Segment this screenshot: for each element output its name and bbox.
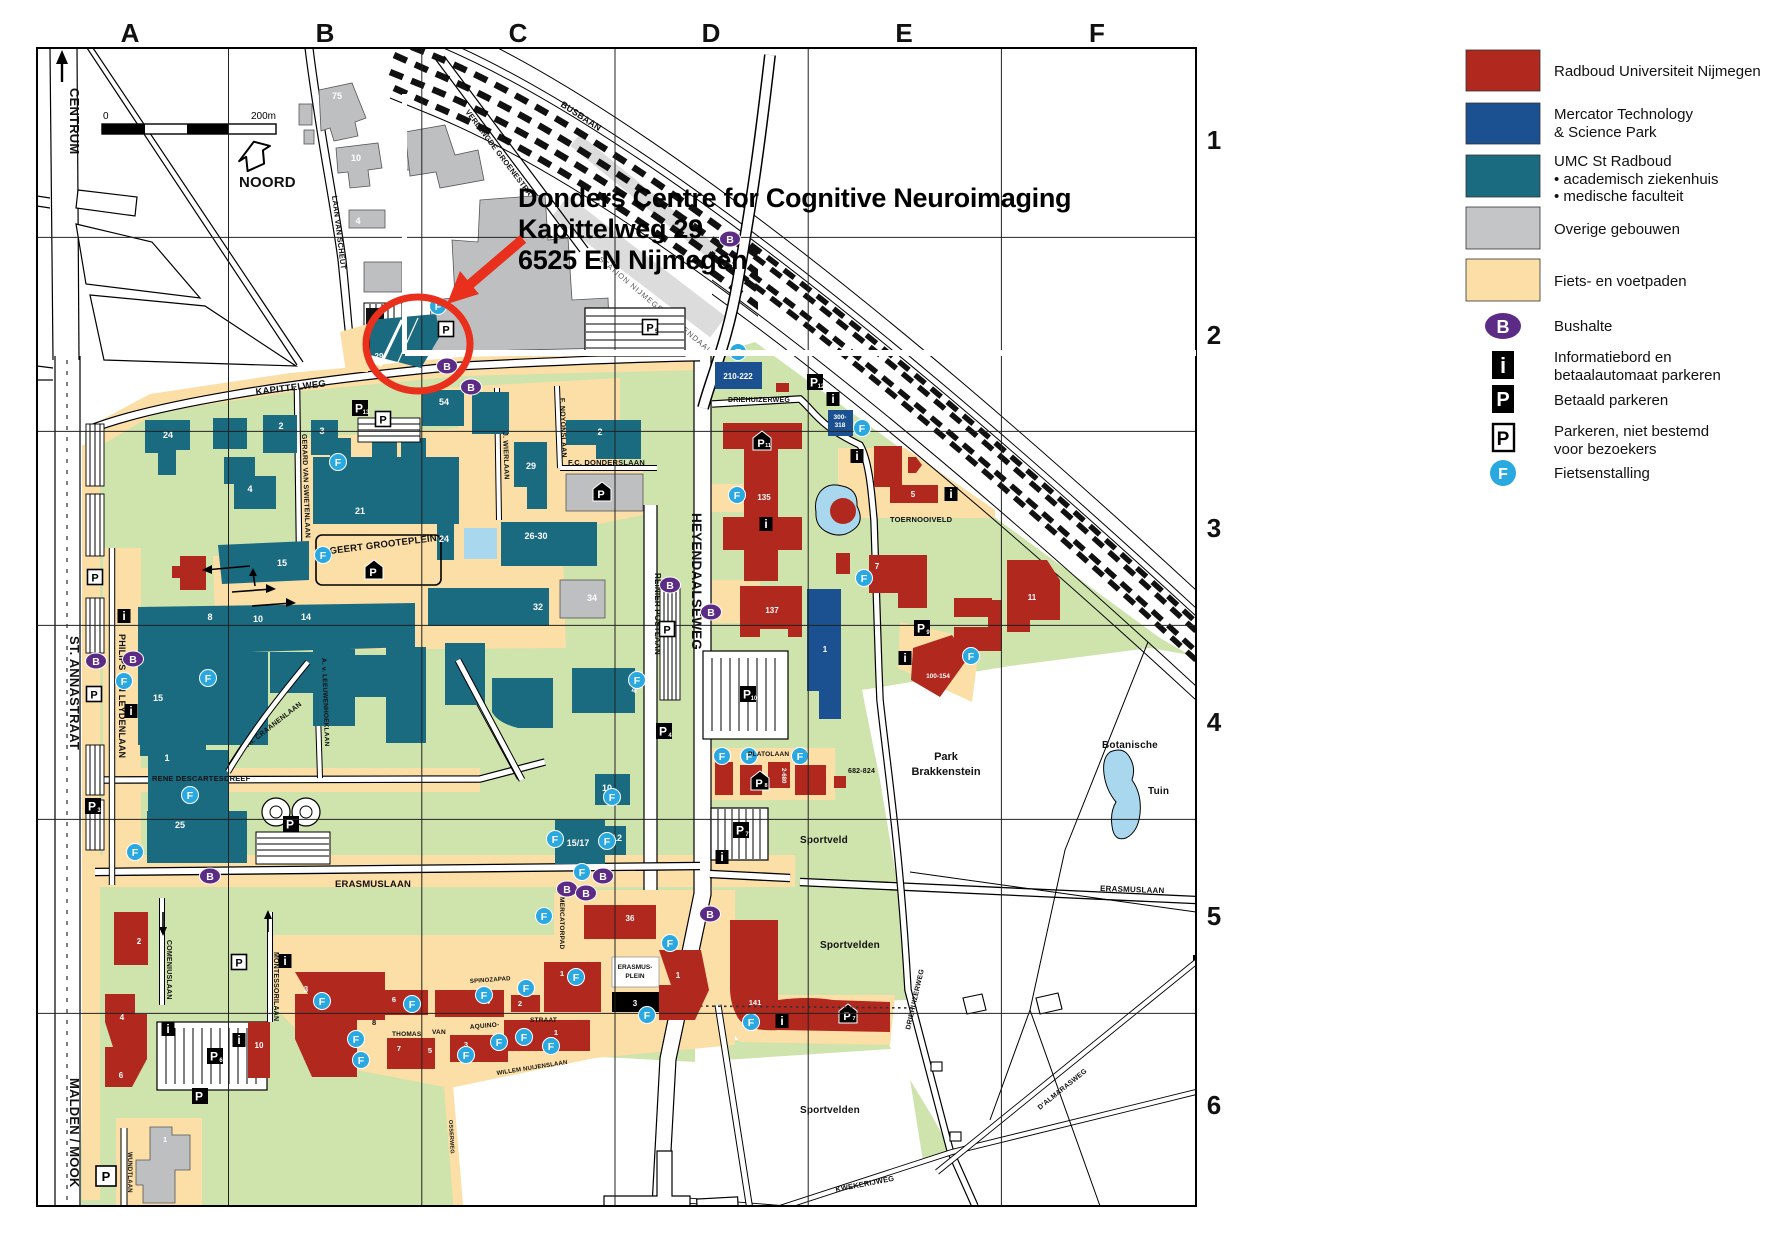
svg-text:Park: Park — [934, 751, 959, 763]
svg-text:29: 29 — [375, 352, 384, 361]
svg-text:TOERNOOIVELD: TOERNOOIVELD — [890, 515, 953, 524]
svg-text:210-222: 210-222 — [723, 372, 753, 381]
svg-text:Sportvelden: Sportvelden — [800, 1105, 860, 1116]
svg-text:25: 25 — [175, 820, 185, 830]
svg-text:26-30: 26-30 — [524, 531, 547, 541]
svg-text:1: 1 — [163, 1135, 167, 1144]
svg-text:RENE DESCARTESDREEF: RENE DESCARTESDREEF — [152, 774, 251, 783]
svg-text:PLEIN: PLEIN — [625, 973, 644, 980]
svg-text:Fiets- en voetpaden: Fiets- en voetpaden — [1554, 273, 1687, 290]
svg-text:A: A — [121, 18, 140, 48]
svg-text:24: 24 — [439, 534, 449, 544]
svg-text:75: 75 — [332, 91, 342, 101]
svg-text:P: P — [1497, 429, 1510, 450]
svg-text:6525 EN Nijmegen: 6525 EN Nijmegen — [518, 245, 747, 275]
svg-text:135: 135 — [757, 493, 771, 502]
svg-text:Fietsenstalling: Fietsenstalling — [1554, 465, 1650, 482]
svg-text:5: 5 — [1207, 901, 1221, 931]
svg-text:P: P — [1496, 389, 1509, 411]
svg-text:1: 1 — [676, 971, 681, 980]
svg-text:3: 3 — [633, 999, 638, 1008]
svg-text:HEYENDAALSEWEG: HEYENDAALSEWEG — [689, 513, 704, 650]
svg-text:2: 2 — [597, 427, 602, 437]
svg-text:682-824: 682-824 — [848, 768, 875, 775]
svg-text:10: 10 — [351, 153, 361, 163]
svg-text:11: 11 — [1028, 593, 1037, 602]
svg-text:34: 34 — [587, 593, 597, 603]
svg-text:4: 4 — [1207, 707, 1222, 737]
svg-text:Informatiebord en: Informatiebord en — [1554, 349, 1672, 366]
svg-text:7: 7 — [852, 1016, 855, 1022]
svg-text:PHILIPS VAN LEYDENLAAN: PHILIPS VAN LEYDENLAAN — [117, 634, 127, 758]
svg-text:1: 1 — [560, 969, 564, 978]
svg-text:Donders Centre for Cognitive N: Donders Centre for Cognitive Neuroimagin… — [518, 183, 1071, 213]
svg-text:THOMAS: THOMAS — [392, 1031, 422, 1038]
svg-text:4: 4 — [247, 484, 252, 494]
svg-text:• medische faculteit: • medische faculteit — [1554, 188, 1684, 205]
svg-text:DRIEHUIZERWEG: DRIEHUIZERWEG — [728, 397, 790, 404]
svg-text:318: 318 — [835, 422, 846, 429]
svg-text:4: 4 — [120, 1013, 125, 1022]
svg-text:MALDEN / MOOK: MALDEN / MOOK — [67, 1078, 82, 1188]
svg-text:15: 15 — [277, 558, 287, 568]
svg-text:36: 36 — [626, 914, 635, 923]
svg-text:12: 12 — [818, 384, 825, 390]
svg-text:ST. ANNASTRAAT: ST. ANNASTRAAT — [67, 636, 82, 750]
svg-text:Tuin: Tuin — [1148, 786, 1169, 797]
svg-text:• academisch ziekenhuis: • academisch ziekenhuis — [1554, 171, 1719, 188]
svg-text:10: 10 — [751, 696, 758, 702]
svg-text:137: 137 — [765, 606, 779, 615]
svg-text:100-154: 100-154 — [926, 673, 950, 680]
svg-text:2: 2 — [278, 421, 283, 431]
svg-text:MONTESSORILAAN: MONTESSORILAAN — [272, 952, 279, 1021]
svg-text:15: 15 — [153, 693, 163, 703]
svg-text:8: 8 — [207, 612, 212, 622]
svg-text:1: 1 — [164, 753, 169, 763]
svg-text:14: 14 — [301, 612, 311, 622]
svg-text:Sportveld: Sportveld — [800, 835, 848, 846]
svg-text:7: 7 — [875, 562, 880, 571]
svg-text:300-: 300- — [833, 414, 846, 421]
svg-text:PLATOLAAN: PLATOLAAN — [748, 751, 789, 758]
svg-text:COMENIUSLAAN: COMENIUSLAAN — [165, 940, 172, 1000]
svg-text:Bushalte: Bushalte — [1554, 318, 1612, 335]
svg-text:STRAAT: STRAAT — [530, 1017, 557, 1024]
svg-text:10: 10 — [253, 614, 263, 624]
svg-text:Sportvelden: Sportvelden — [820, 940, 880, 951]
svg-text:7: 7 — [397, 1044, 401, 1053]
svg-text:8: 8 — [764, 783, 767, 789]
svg-text:4: 4 — [355, 216, 360, 226]
svg-text:21: 21 — [355, 506, 365, 516]
svg-text:VAN: VAN — [432, 1029, 446, 1036]
svg-text:E: E — [895, 18, 912, 48]
svg-text:5: 5 — [911, 490, 916, 499]
svg-text:MERCATORPAD: MERCATORPAD — [558, 897, 565, 950]
svg-text:WUNDTLAAN: WUNDTLAAN — [126, 1152, 132, 1193]
svg-text:2: 2 — [137, 937, 142, 946]
svg-text:B: B — [1497, 317, 1510, 337]
svg-text:F: F — [1498, 466, 1508, 483]
svg-text:i: i — [1500, 353, 1506, 378]
svg-text:2-680: 2-680 — [780, 768, 786, 784]
svg-text:1: 1 — [554, 1028, 558, 1037]
svg-text:29: 29 — [526, 461, 536, 471]
svg-text:3: 3 — [1207, 513, 1221, 543]
svg-text:UMC St Radboud: UMC St Radboud — [1554, 153, 1672, 170]
svg-text:2: 2 — [518, 999, 522, 1008]
svg-text:1: 1 — [823, 645, 828, 654]
svg-text:C: C — [509, 18, 528, 48]
svg-text:Overige gebouwen: Overige gebouwen — [1554, 221, 1680, 238]
svg-text:Radboud Universiteit Nijmegen: Radboud Universiteit Nijmegen — [1554, 63, 1761, 80]
svg-text:NOORD: NOORD — [239, 174, 296, 191]
svg-text:13: 13 — [363, 410, 370, 416]
svg-text:F: F — [1089, 18, 1105, 48]
svg-text:ERASMUSLAAN: ERASMUSLAAN — [335, 879, 411, 890]
svg-text:0: 0 — [103, 111, 109, 122]
svg-text:141: 141 — [749, 998, 762, 1007]
svg-text:6: 6 — [1207, 1090, 1221, 1120]
svg-text:Parkeren, niet bestemd: Parkeren, niet bestemd — [1554, 423, 1709, 440]
svg-text:10: 10 — [255, 1041, 264, 1050]
svg-text:200m: 200m — [251, 111, 276, 122]
svg-text:6: 6 — [119, 1071, 124, 1080]
svg-text:Mercator Technology: Mercator Technology — [1554, 106, 1693, 123]
svg-text:Betaald parkeren: Betaald parkeren — [1554, 392, 1668, 409]
svg-text:P: P — [102, 1169, 111, 1184]
svg-text:32: 32 — [533, 602, 543, 612]
svg-text:F.C. DONDERSLAAN: F.C. DONDERSLAAN — [568, 458, 645, 467]
svg-text:Kapittelweg 29: Kapittelweg 29 — [518, 214, 703, 244]
svg-text:11: 11 — [765, 443, 771, 449]
svg-text:3: 3 — [304, 985, 309, 994]
svg-text:2: 2 — [1207, 320, 1221, 350]
svg-text:8: 8 — [372, 1018, 376, 1027]
svg-text:betaalautomaat parkeren: betaalautomaat parkeren — [1554, 367, 1721, 384]
svg-text:voor bezoekers: voor bezoekers — [1554, 441, 1657, 458]
svg-text:54: 54 — [439, 397, 449, 407]
svg-text:5: 5 — [428, 1046, 432, 1055]
svg-text:D: D — [702, 18, 721, 48]
svg-text:CENTRUM: CENTRUM — [67, 88, 82, 154]
svg-text:1: 1 — [1207, 125, 1221, 155]
svg-text:15/17: 15/17 — [567, 838, 590, 848]
svg-text:& Science Park: & Science Park — [1554, 124, 1657, 141]
svg-text:Brakkenstein: Brakkenstein — [911, 766, 980, 778]
svg-text:B: B — [316, 18, 335, 48]
svg-text:Botanische: Botanische — [1102, 740, 1158, 751]
svg-text:ERASMUS-: ERASMUS- — [618, 964, 653, 971]
svg-text:6: 6 — [392, 995, 396, 1004]
